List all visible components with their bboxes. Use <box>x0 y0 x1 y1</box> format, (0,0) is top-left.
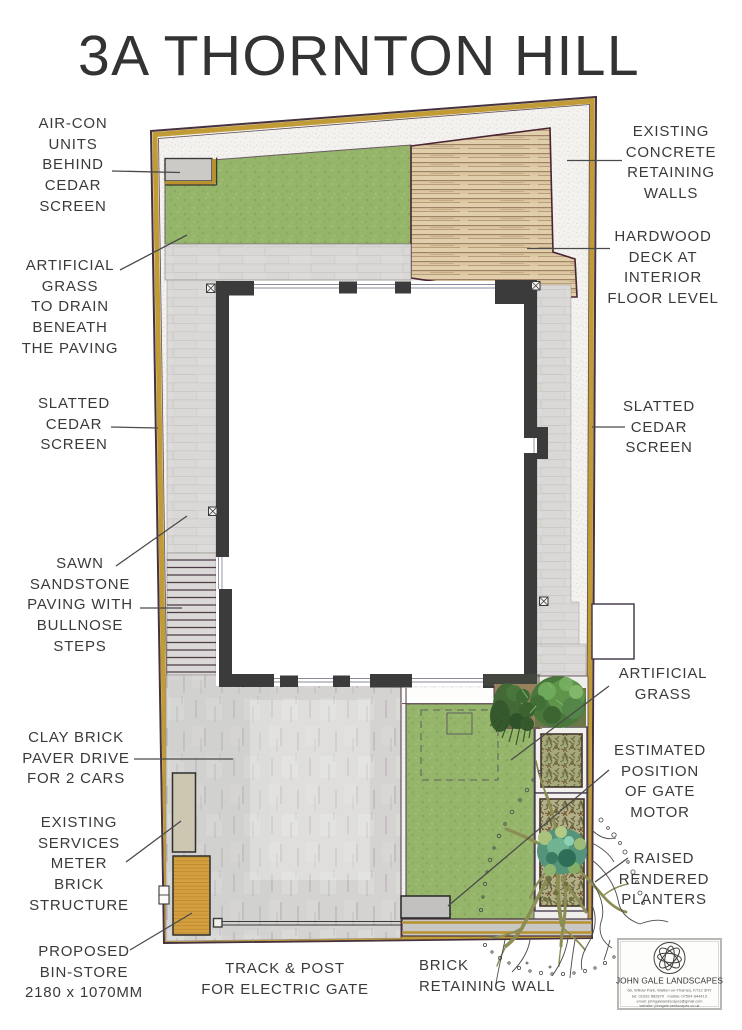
svg-text:tel: 01932 882870 mobile: 07: tel: 01932 882870 mobile: 07504 844413 <box>632 994 708 999</box>
svg-text:JOHN GALE LANDSCAPES: JOHN GALE LANDSCAPES <box>616 976 723 986</box>
svg-text:email: johngalelandscapes@gmai: email: johngalelandscapes@gmail.com <box>637 1000 703 1004</box>
svg-text:website: johngale-landscapes.c: website: johngale-landscapes.co.uk <box>640 1004 700 1008</box>
svg-text:68, Willow Park, Walton-on-Tha: 68, Willow Park, Walton-on-Thames, KT12 … <box>627 988 712 993</box>
